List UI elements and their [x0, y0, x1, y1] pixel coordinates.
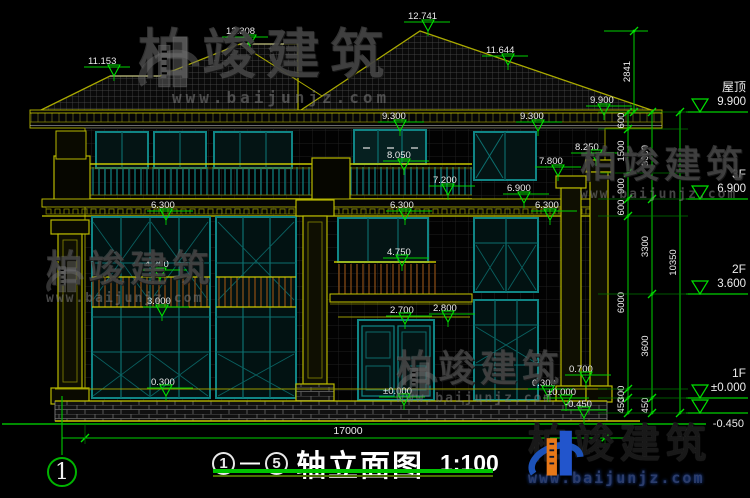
pilaster-left-corner	[51, 220, 89, 404]
window-center-left-bay	[216, 217, 296, 398]
width-dim-label: 17000	[333, 425, 362, 437]
floor-level-name: 1F	[732, 366, 746, 380]
dim-chain-label: 3300	[640, 236, 651, 257]
dim-chain-label: 3000	[640, 145, 651, 166]
elevation-label: 8.250	[575, 142, 599, 153]
dim-chain-label: 900	[616, 178, 627, 194]
floor-level-value: -0.450	[713, 418, 744, 430]
window-2f-right	[474, 218, 538, 292]
window-1f-right	[474, 300, 538, 400]
elevation-drawing-canvas: 11.15312.30812.74111.6449.9009.3009.3008…	[0, 0, 750, 498]
dim-chain-label: 450	[616, 398, 627, 414]
eave-band	[30, 110, 662, 128]
floor-level-triangle	[692, 186, 708, 199]
floor-level-triangle	[692, 400, 708, 413]
dim-chain-label: 450	[640, 398, 651, 414]
floor-level-triangle	[692, 99, 708, 112]
floor-level-name: 2F	[732, 262, 746, 276]
floor-level-value: 6.900	[717, 183, 746, 195]
balcony-railing-2f-center	[334, 262, 436, 294]
roof	[35, 31, 657, 113]
floor-level-name: 3F	[732, 167, 746, 181]
dim-chain-label: 6000	[616, 292, 627, 313]
window-3f-left-b	[154, 132, 206, 168]
dim-chain-label: 10350	[668, 249, 679, 275]
window-3f-right	[474, 132, 536, 180]
dim-chain-label: 2841	[622, 61, 633, 82]
title-underline-2	[213, 475, 493, 477]
window-2f-center	[338, 218, 428, 262]
window-3f-left-c	[214, 132, 292, 168]
title-text: 轴立面图	[296, 441, 424, 485]
floor-level-name: 屋顶	[722, 80, 746, 94]
elevation-label: ±0.000	[383, 386, 412, 397]
floor-level-value: ±0.000	[711, 382, 746, 394]
drawing-title: 1 — 5 轴立面图 1:100	[212, 441, 499, 485]
axis-bubble-label: 1	[55, 460, 69, 485]
floor-level-triangle	[692, 385, 708, 398]
dim-chain-label: 600	[616, 200, 627, 216]
floor-level-value: 3.600	[717, 278, 746, 290]
floor-level-triangle	[692, 281, 708, 294]
dim-chain-label: 3600	[640, 335, 651, 356]
window-3f-left-a	[96, 132, 148, 168]
dim-chain-label: 1500	[616, 140, 627, 161]
title-underline	[213, 469, 493, 473]
dim-chain-label: 600	[616, 113, 627, 129]
pier-upper-left	[56, 131, 86, 159]
floor-level-value: 9.900	[717, 96, 746, 108]
axis-bubble-1: 1	[47, 457, 77, 487]
